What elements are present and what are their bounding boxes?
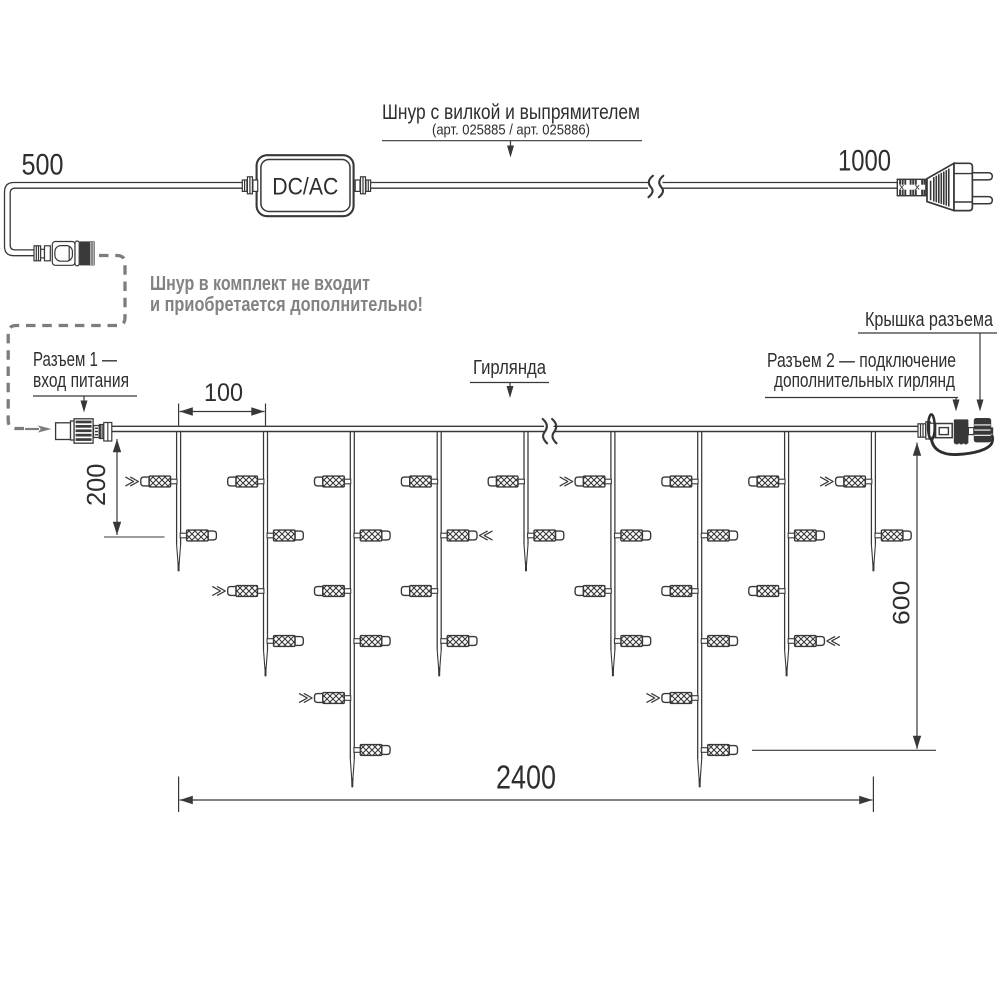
svg-text:200: 200	[81, 464, 111, 507]
svg-text:(арт. 025885 / арт. 025886): (арт. 025885 / арт. 025886)	[432, 123, 590, 139]
svg-text:DC/AC: DC/AC	[272, 173, 338, 200]
svg-text:Гирлянда: Гирлянда	[473, 357, 547, 379]
svg-text:500: 500	[22, 149, 64, 182]
svg-text:Шнур с вилкой и выпрямителем: Шнур с вилкой и выпрямителем	[382, 100, 640, 124]
svg-text:100: 100	[204, 379, 243, 407]
svg-text:1000: 1000	[838, 145, 891, 178]
svg-text:и приобретается дополнительно!: и приобретается дополнительно!	[150, 293, 423, 316]
svg-text:2400: 2400	[496, 759, 556, 796]
svg-text:Шнур в комплект не входит: Шнур в комплект не входит	[150, 272, 370, 295]
svg-text:600: 600	[889, 581, 916, 626]
svg-text:вход питания: вход питания	[33, 369, 129, 392]
svg-text:Крышка разъема: Крышка разъема	[865, 309, 994, 331]
svg-text:дополнительных гирлянд: дополнительных гирлянд	[774, 370, 955, 392]
svg-text:Разъем 1 —: Разъем 1 —	[33, 348, 117, 371]
svg-text:Разъем 2 — подключение: Разъем 2 — подключение	[767, 350, 956, 372]
